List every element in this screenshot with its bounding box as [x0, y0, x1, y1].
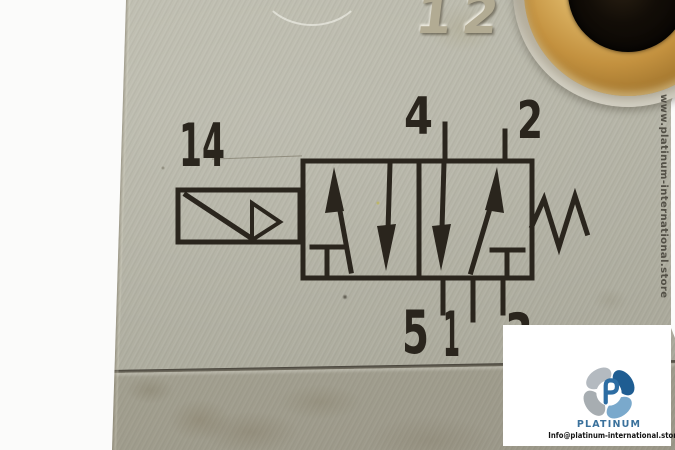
- port-label-1: 1: [443, 298, 460, 371]
- port-label-4: 4: [404, 87, 433, 147]
- port-label-14: 14: [179, 111, 225, 181]
- solenoid-box: [178, 190, 300, 242]
- port-label-2: 2: [517, 91, 543, 151]
- seller-logo-box: PLATINUM Info@platinum-international.sto…: [503, 325, 671, 446]
- brand-name: PLATINUM: [573, 419, 645, 430]
- schematic-lines: [178, 124, 587, 320]
- contact-email: Info@platinum-international.store: [548, 431, 669, 440]
- watermark-text: www.platinum-international.store: [658, 94, 669, 298]
- port-label-5: 5: [402, 298, 429, 368]
- spring-symbol: [532, 196, 587, 247]
- product-photo: 12: [0, 0, 675, 450]
- platinum-logo-icon: [579, 363, 639, 423]
